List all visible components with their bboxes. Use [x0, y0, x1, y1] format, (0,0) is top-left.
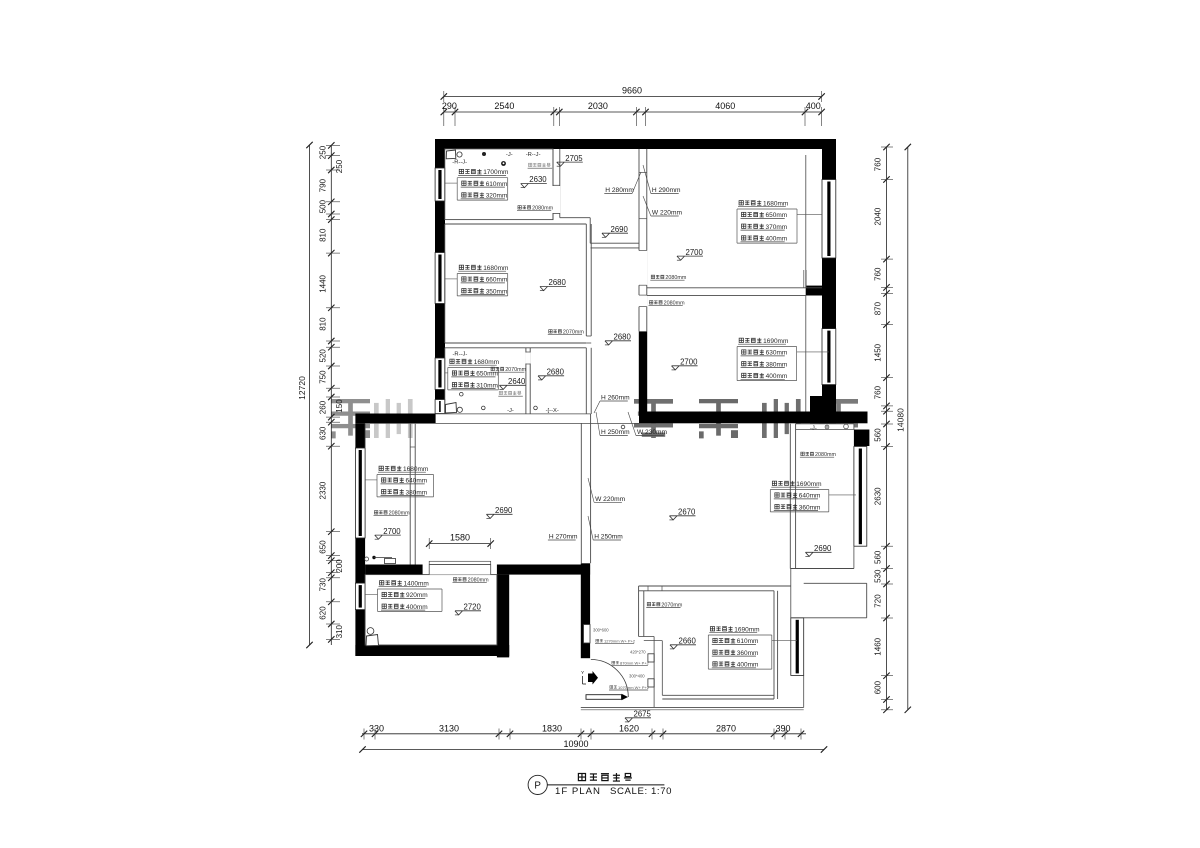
- svg-text:600: 600: [874, 680, 883, 694]
- svg-text:530: 530: [874, 569, 883, 583]
- svg-text:1830: 1830: [542, 724, 562, 734]
- svg-text:1620: 1620: [619, 724, 639, 734]
- svg-text:-J-: -J-: [506, 152, 513, 158]
- svg-text:400: 400: [806, 101, 821, 111]
- svg-text:790: 790: [319, 178, 328, 192]
- svg-text:2640: 2640: [508, 377, 526, 386]
- svg-text:-[--X-: -[--X-: [546, 408, 559, 414]
- svg-text:1580: 1580: [450, 533, 470, 543]
- svg-text:760: 760: [874, 157, 883, 171]
- svg-text:2630: 2630: [529, 175, 547, 184]
- svg-text:W 220mm: W 220mm: [595, 496, 626, 503]
- svg-text:3130: 3130: [439, 724, 459, 734]
- svg-text:810: 810: [319, 228, 328, 242]
- svg-text:14080: 14080: [896, 408, 906, 432]
- svg-text:2700: 2700: [383, 527, 401, 536]
- svg-text:H 260mm: H 260mm: [601, 395, 630, 402]
- svg-text:1270mm W+ P+2: 1270mm W+ P+2: [604, 639, 636, 644]
- svg-text:750: 750: [319, 370, 328, 384]
- svg-text:10900: 10900: [563, 739, 588, 749]
- svg-text:2040: 2040: [874, 207, 883, 225]
- svg-text:250: 250: [319, 145, 328, 159]
- svg-text:W 220mm: W 220mm: [652, 210, 683, 217]
- svg-text:870mm W+ P+2: 870mm W+ P+2: [620, 661, 650, 666]
- svg-text:2680: 2680: [547, 368, 565, 377]
- svg-text:300*600: 300*600: [593, 628, 609, 633]
- svg-text:2870: 2870: [716, 724, 736, 734]
- svg-text:330: 330: [369, 724, 384, 734]
- svg-text:1450: 1450: [874, 343, 883, 361]
- svg-text:2670: 2670: [678, 508, 696, 517]
- svg-text:730: 730: [319, 577, 328, 591]
- svg-text:H 290mm: H 290mm: [652, 187, 681, 194]
- svg-text:-J-: -J-: [507, 408, 514, 414]
- svg-text:2700: 2700: [680, 358, 698, 367]
- svg-text:2720: 2720: [464, 603, 482, 612]
- svg-text:420*270: 420*270: [630, 650, 646, 655]
- svg-text:260: 260: [319, 400, 328, 414]
- svg-text:H 250mm: H 250mm: [594, 534, 623, 541]
- svg-text:2680: 2680: [614, 333, 632, 342]
- svg-text:620: 620: [319, 606, 328, 620]
- svg-text:2630: 2630: [874, 487, 883, 505]
- svg-text:500: 500: [319, 199, 328, 213]
- svg-text:560: 560: [874, 550, 883, 564]
- svg-text:290: 290: [442, 101, 457, 111]
- svg-text:9660: 9660: [622, 86, 642, 96]
- svg-text:1440: 1440: [319, 274, 328, 292]
- svg-text:2690: 2690: [495, 506, 513, 515]
- svg-text:760: 760: [874, 267, 883, 281]
- svg-text:SCALE: 1:70: SCALE: 1:70: [610, 786, 672, 797]
- svg-text:2705: 2705: [565, 154, 583, 163]
- svg-text:2330: 2330: [319, 481, 328, 499]
- svg-text:2540: 2540: [494, 101, 514, 111]
- svg-text:870: 870: [874, 301, 883, 315]
- svg-text:520: 520: [319, 349, 328, 363]
- svg-text:1F PLAN: 1F PLAN: [555, 786, 601, 797]
- svg-text:720: 720: [874, 594, 883, 608]
- svg-text:390: 390: [775, 724, 790, 734]
- svg-text:-R--J-: -R--J-: [526, 152, 541, 158]
- svg-text:200: 200: [335, 559, 344, 573]
- svg-text:650: 650: [319, 540, 328, 554]
- svg-text:1460: 1460: [874, 637, 883, 655]
- svg-text:2690: 2690: [814, 544, 832, 553]
- svg-text:2700: 2700: [686, 248, 704, 257]
- svg-text:12720: 12720: [297, 376, 307, 400]
- svg-text:W 230mm: W 230mm: [637, 429, 668, 436]
- svg-text:2675: 2675: [634, 710, 652, 719]
- svg-text:310: 310: [335, 624, 344, 638]
- svg-text:810: 810: [319, 317, 328, 331]
- svg-text:H 250mm: H 250mm: [601, 429, 630, 436]
- svg-text:300*400: 300*400: [629, 674, 645, 679]
- svg-text:H 280mm: H 280mm: [605, 187, 634, 194]
- svg-text:630: 630: [319, 426, 328, 440]
- svg-text:150: 150: [335, 399, 344, 413]
- svg-text:P: P: [534, 780, 541, 791]
- svg-text:250: 250: [335, 159, 344, 173]
- svg-text:560: 560: [874, 428, 883, 442]
- svg-text:1070mm W+ P+2: 1070mm W+ P+2: [618, 685, 650, 690]
- svg-text:-J-: -J-: [810, 426, 817, 432]
- svg-text:H 270mm: H 270mm: [549, 534, 578, 541]
- svg-text:4060: 4060: [715, 101, 735, 111]
- svg-text:760: 760: [874, 385, 883, 399]
- svg-text:-R--J-: -R--J-: [452, 160, 467, 166]
- svg-text:2680: 2680: [549, 278, 567, 287]
- svg-text:-R--J-: -R--J-: [453, 351, 468, 357]
- svg-text:2660: 2660: [679, 637, 697, 646]
- svg-text:2690: 2690: [611, 225, 629, 234]
- svg-text:2030: 2030: [588, 101, 608, 111]
